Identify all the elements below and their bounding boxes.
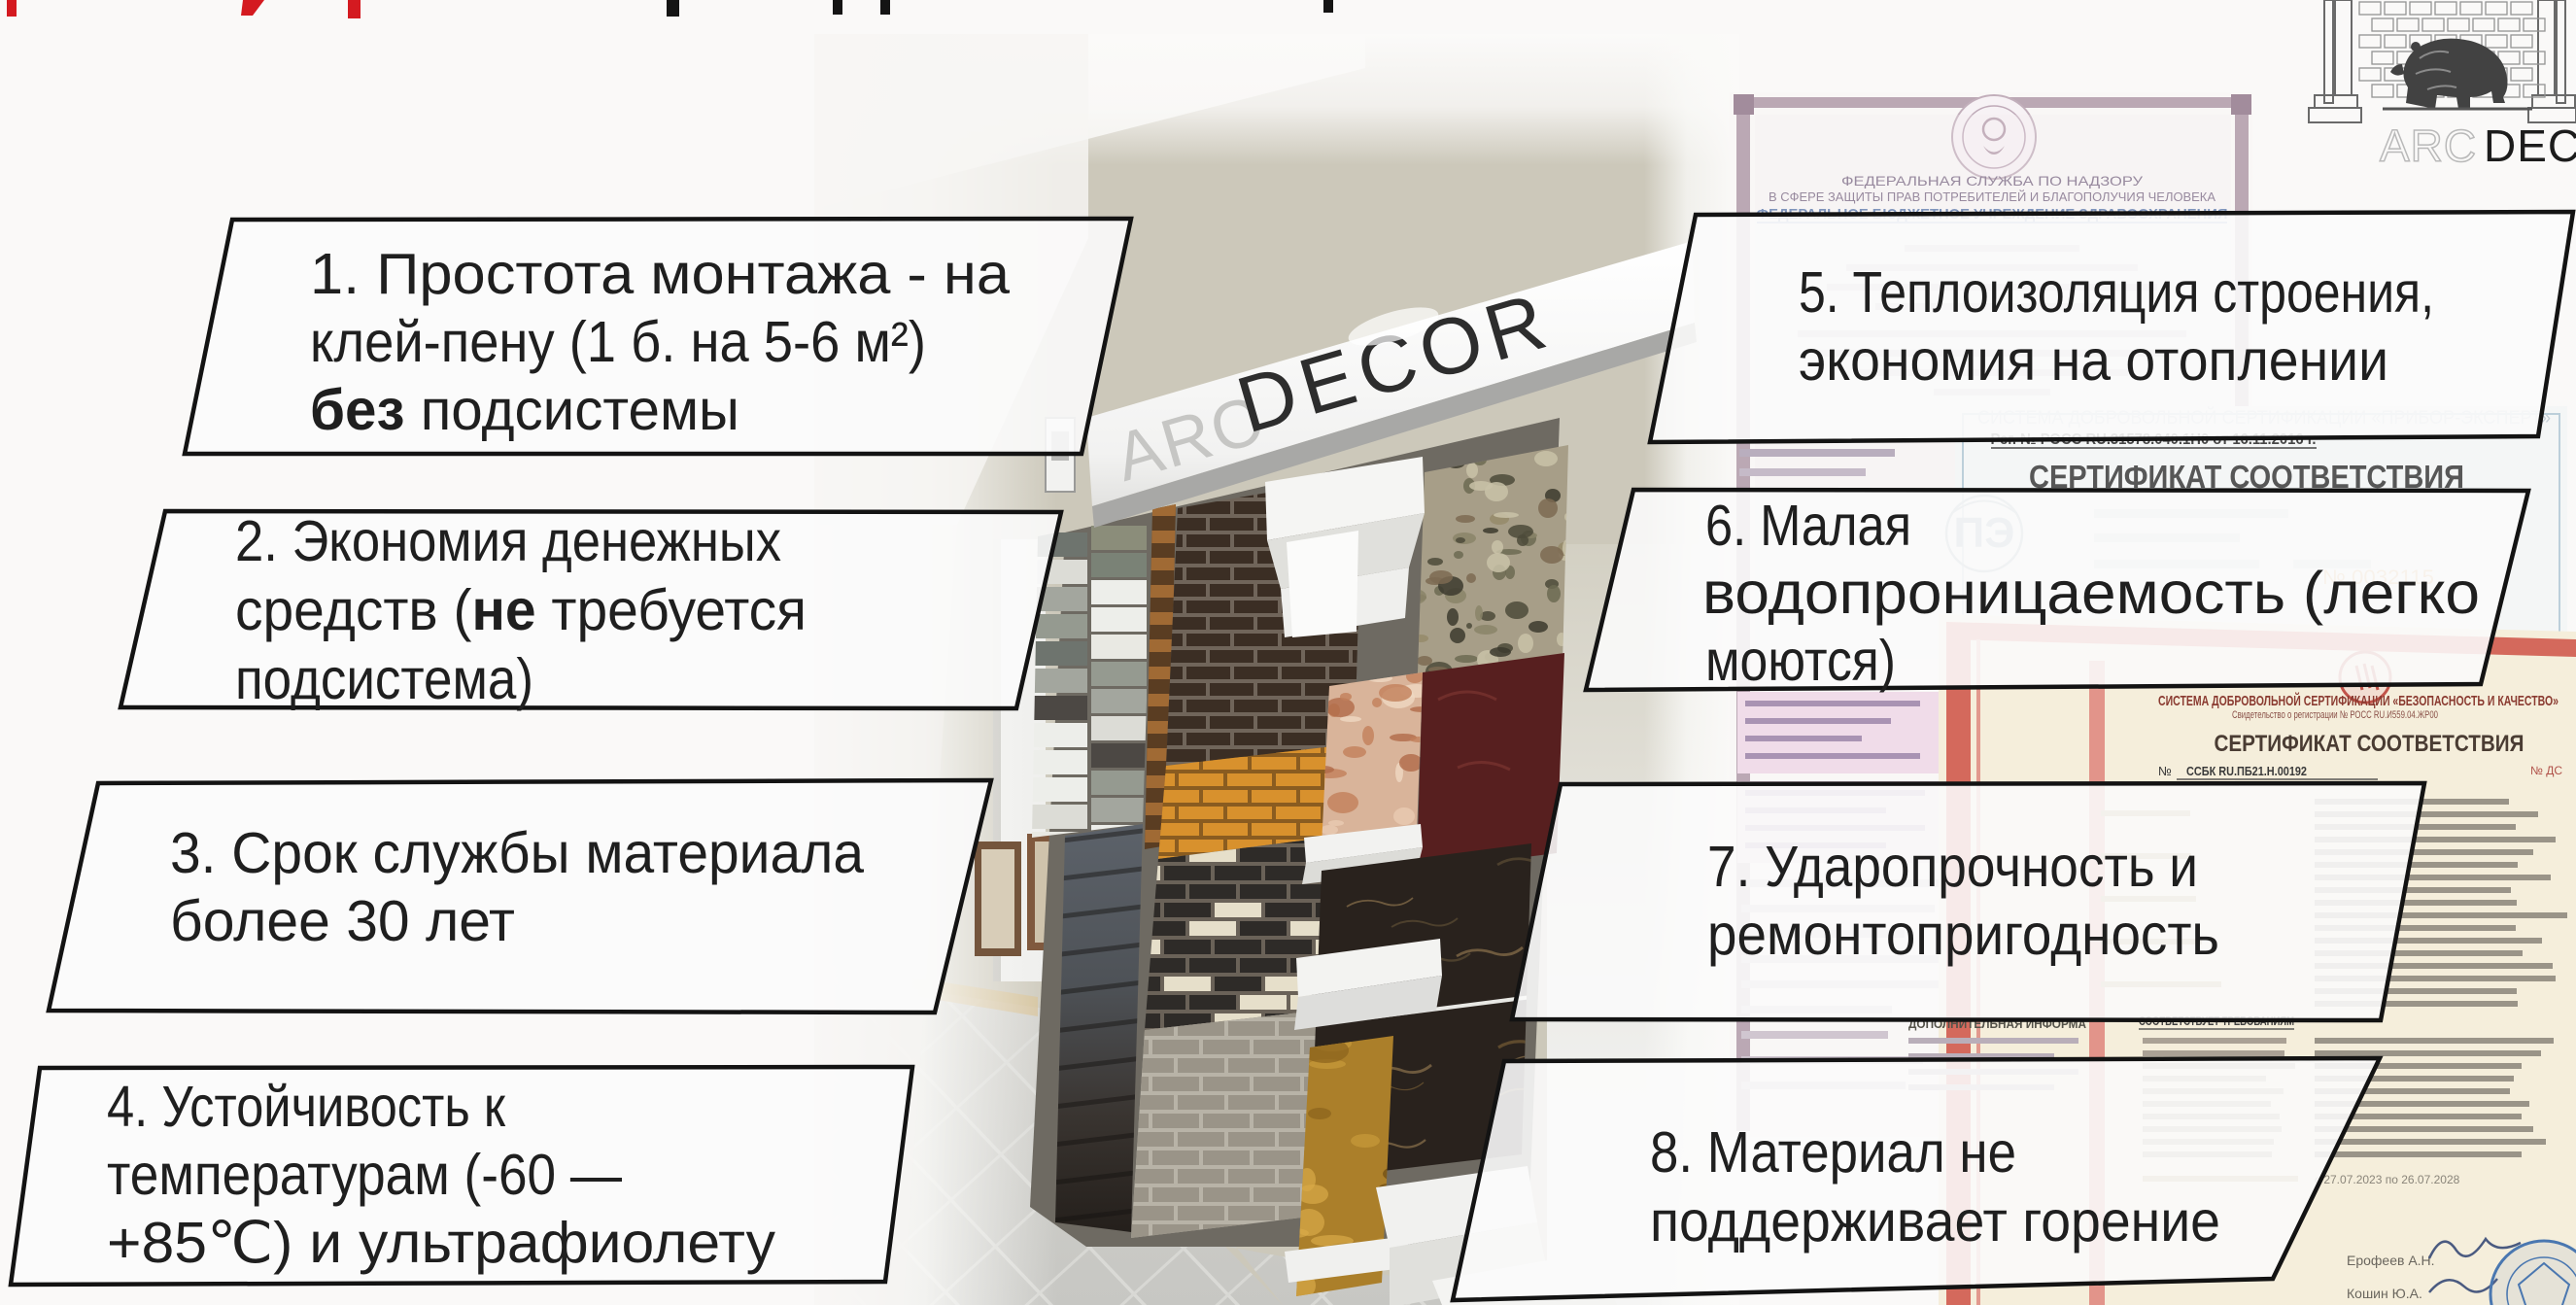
svg-text:№ ДС: № ДС (2530, 764, 2562, 777)
svg-text:с 27.07.2023 по 26.07.2028: с 27.07.2023 по 26.07.2028 (2315, 1173, 2460, 1186)
svg-text:клей-пену (1 б. на 5-6 м²): клей-пену (1 б. на 5-6 м²) (310, 310, 926, 374)
svg-text:ARC: ARC (2380, 120, 2477, 171)
svg-text:СЕРТИФИКАТ СООТВЕТСТВИЯ: СЕРТИФИКАТ СООТВЕТСТВИЯ (2215, 731, 2524, 757)
svg-text:+85℃) и ультрафиолету: +85℃) и ультрафиолету (107, 1211, 776, 1275)
svg-text:без подсистемы: без подсистемы (310, 378, 739, 442)
svg-text:4. Устойчивость к: 4. Устойчивость к (107, 1075, 506, 1139)
svg-text:DECOR: DECOR (2484, 120, 2576, 171)
svg-text:6. Малая: 6. Малая (1705, 494, 1911, 558)
svg-text:2. Экономия денежных: 2. Экономия денежных (235, 509, 781, 573)
svg-text:подсистема): подсистема) (235, 647, 533, 711)
svg-text:экономия на отоплении: экономия на отоплении (1799, 328, 2388, 393)
svg-text:Свидетельство о регистрации №: Свидетельство о регистрации № РОСС RU.И5… (2232, 709, 2438, 721)
svg-text:Ерофеев А.Н.: Ерофеев А.Н. (2347, 1253, 2435, 1268)
svg-text:средств (не требуется: средств (не требуется (235, 578, 807, 642)
svg-text:ССБК RU.ПБ21.Н.00192: ССБК RU.ПБ21.Н.00192 (2186, 764, 2307, 778)
svg-text:1. Простота монтажа - на: 1. Простота монтажа - на (310, 242, 1010, 306)
svg-text:моются): моются) (1705, 629, 1896, 693)
svg-text:водопроницаемость (легко: водопроницаемость (легко (1702, 560, 2480, 626)
svg-text:№: № (2158, 764, 2172, 778)
svg-text:более 30 лет: более 30 лет (170, 889, 515, 953)
svg-text:7. Ударопрочность и: 7. Ударопрочность и (1707, 835, 2198, 899)
svg-text:3. Срок службы материала: 3. Срок службы материала (170, 821, 864, 885)
svg-text:5. Теплоизоляция строения,: 5. Теплоизоляция строения, (1799, 260, 2434, 325)
svg-text:СИСТЕМА ДОБРОВОЛЬНОЙ СЕРТИФИКА: СИСТЕМА ДОБРОВОЛЬНОЙ СЕРТИФИКАЦИИ «БЕЗОП… (2158, 692, 2559, 709)
svg-text:ремонтопригодность: ремонтопригодность (1707, 903, 2219, 967)
svg-text:поддерживает горение: поддерживает горение (1650, 1189, 2220, 1253)
svg-text:температурам (-60 —: температурам (-60 — (107, 1143, 622, 1207)
svg-text:Кошин Ю.А.: Кошин Ю.А. (2347, 1286, 2422, 1301)
svg-text:8. Материал не: 8. Материал не (1650, 1120, 2016, 1185)
